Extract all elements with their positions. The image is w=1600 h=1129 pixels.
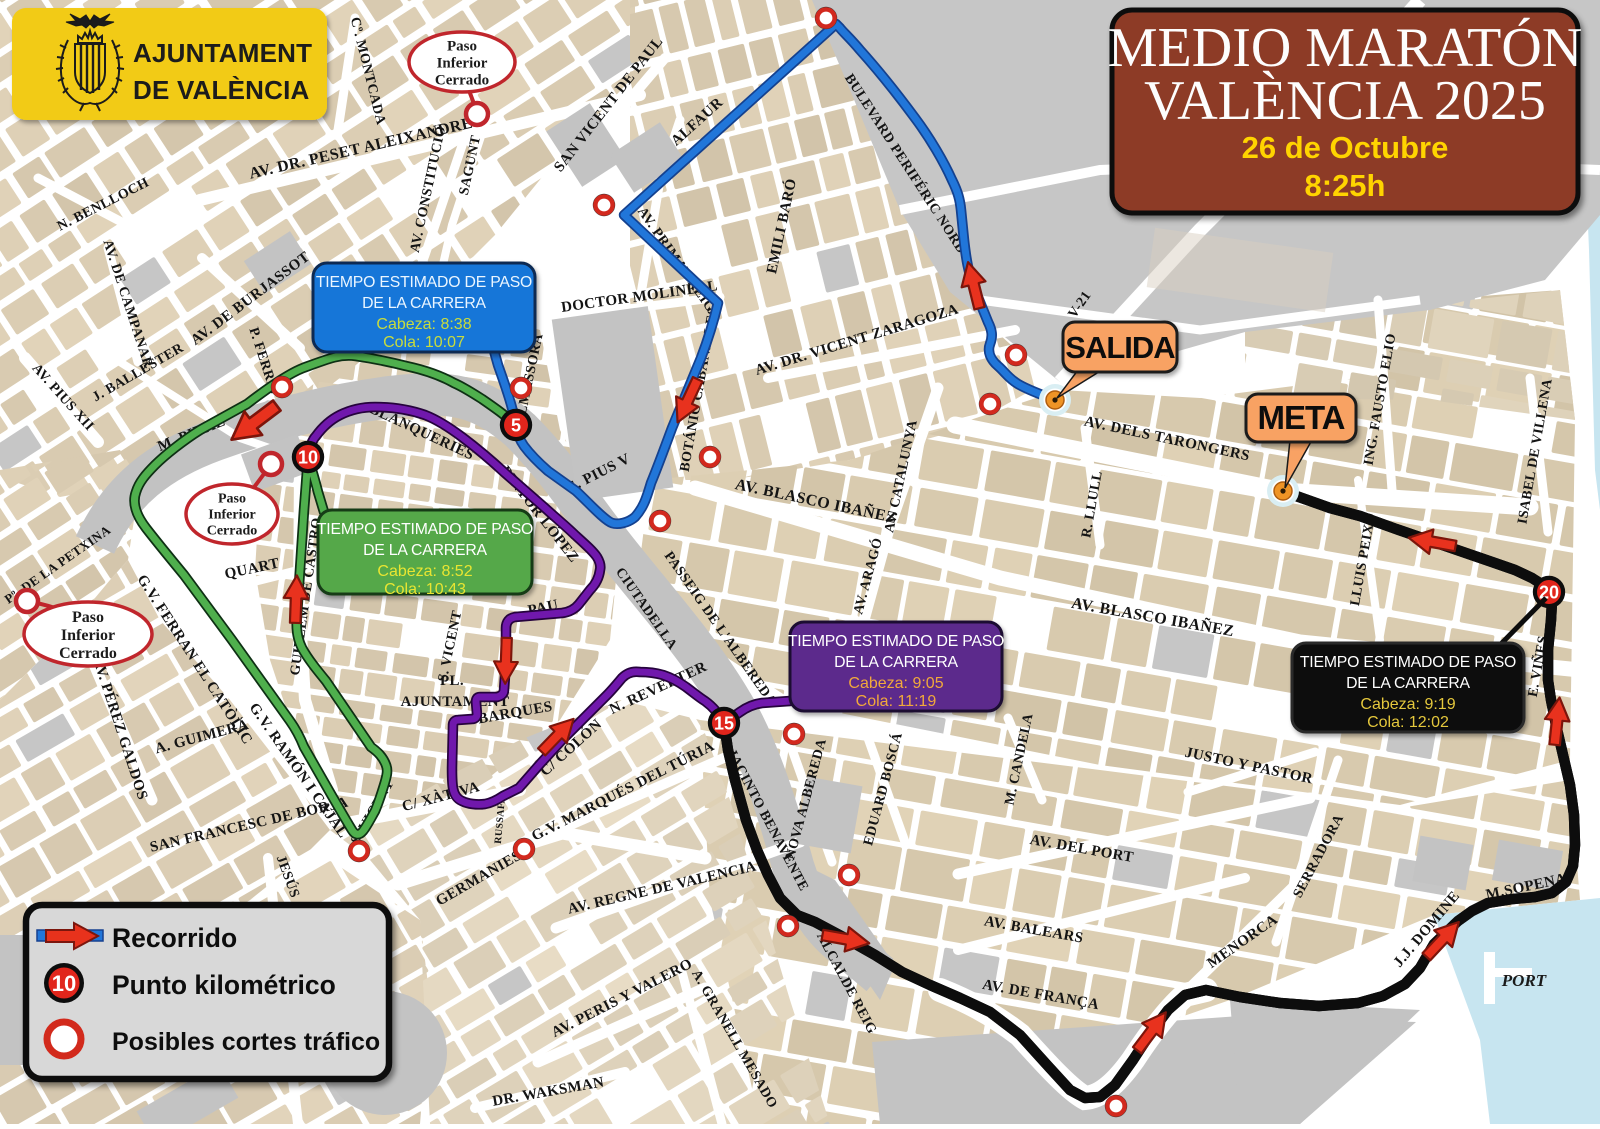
svg-text:PORT: PORT: [1501, 971, 1547, 990]
svg-text:META: META: [1257, 399, 1344, 436]
svg-text:Cabeza: 8:52: Cabeza: 8:52: [377, 563, 472, 580]
svg-text:Cabeza: 9:19: Cabeza: 9:19: [1360, 696, 1455, 713]
svg-text:8:25h: 8:25h: [1305, 168, 1386, 203]
svg-text:SALIDA: SALIDA: [1065, 330, 1175, 365]
svg-text:Cerrado: Cerrado: [435, 73, 489, 89]
svg-text:DE LA CARRERA: DE LA CARRERA: [363, 542, 487, 559]
svg-text:AJUNTAMENT: AJUNTAMENT: [133, 38, 312, 68]
svg-text:5: 5: [511, 416, 521, 436]
svg-text:15: 15: [714, 714, 734, 734]
svg-text:10: 10: [298, 448, 318, 468]
svg-text:TIEMPO ESTIMADO DE PASO: TIEMPO ESTIMADO DE PASO: [317, 521, 533, 538]
svg-text:Cola: 12:02: Cola: 12:02: [1367, 714, 1449, 731]
svg-text:Inferior: Inferior: [208, 508, 255, 523]
svg-text:DE LA CARRERA: DE LA CARRERA: [362, 295, 486, 312]
svg-text:TIEMPO ESTIMADO DE PASO: TIEMPO ESTIMADO DE PASO: [788, 633, 1004, 650]
svg-text:Cola: 10:43: Cola: 10:43: [384, 581, 466, 598]
svg-text:TIEMPO ESTIMADO DE PASO: TIEMPO ESTIMADO DE PASO: [316, 274, 532, 291]
svg-text:Cola: 10:07: Cola: 10:07: [383, 334, 465, 351]
svg-text:Punto kilométrico: Punto kilométrico: [112, 970, 336, 1000]
svg-text:Recorrido: Recorrido: [112, 923, 237, 953]
svg-text:Cerrado: Cerrado: [59, 645, 117, 662]
svg-text:Cabeza: 9:05: Cabeza: 9:05: [848, 675, 943, 692]
svg-text:10: 10: [52, 971, 76, 996]
svg-text:Cabeza: 8:38: Cabeza: 8:38: [376, 316, 471, 333]
svg-text:TIEMPO ESTIMADO DE PASO: TIEMPO ESTIMADO DE PASO: [1300, 654, 1516, 671]
svg-text:Paso: Paso: [72, 609, 104, 626]
svg-text:DE VALÈNCIA: DE VALÈNCIA: [133, 75, 310, 105]
svg-text:Cola: 11:19: Cola: 11:19: [856, 693, 937, 710]
svg-text:26 de Octubre: 26 de Octubre: [1242, 130, 1449, 165]
svg-text:DE LA CARRERA: DE LA CARRERA: [1346, 675, 1470, 692]
svg-text:Cerrado: Cerrado: [207, 524, 258, 539]
svg-text:Paso: Paso: [447, 39, 477, 55]
svg-text:Inferior: Inferior: [61, 627, 115, 644]
svg-text:Inferior: Inferior: [437, 56, 488, 72]
svg-text:VALÈNCIA 2025: VALÈNCIA 2025: [1144, 70, 1546, 132]
svg-text:DE LA CARRERA: DE LA CARRERA: [834, 654, 958, 671]
svg-text:Posibles cortes tráfico: Posibles cortes tráfico: [112, 1028, 380, 1056]
svg-text:Paso: Paso: [218, 492, 246, 507]
